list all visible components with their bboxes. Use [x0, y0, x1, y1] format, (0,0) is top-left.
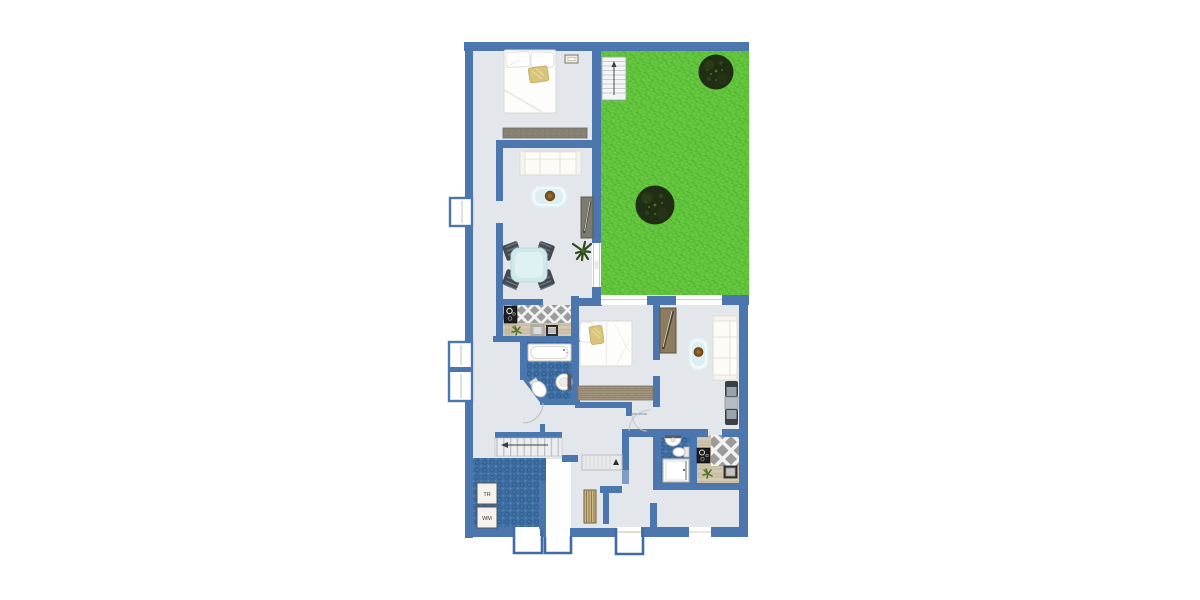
svg-text:WM: WM	[482, 516, 492, 522]
svg-text:TR: TR	[483, 492, 490, 498]
